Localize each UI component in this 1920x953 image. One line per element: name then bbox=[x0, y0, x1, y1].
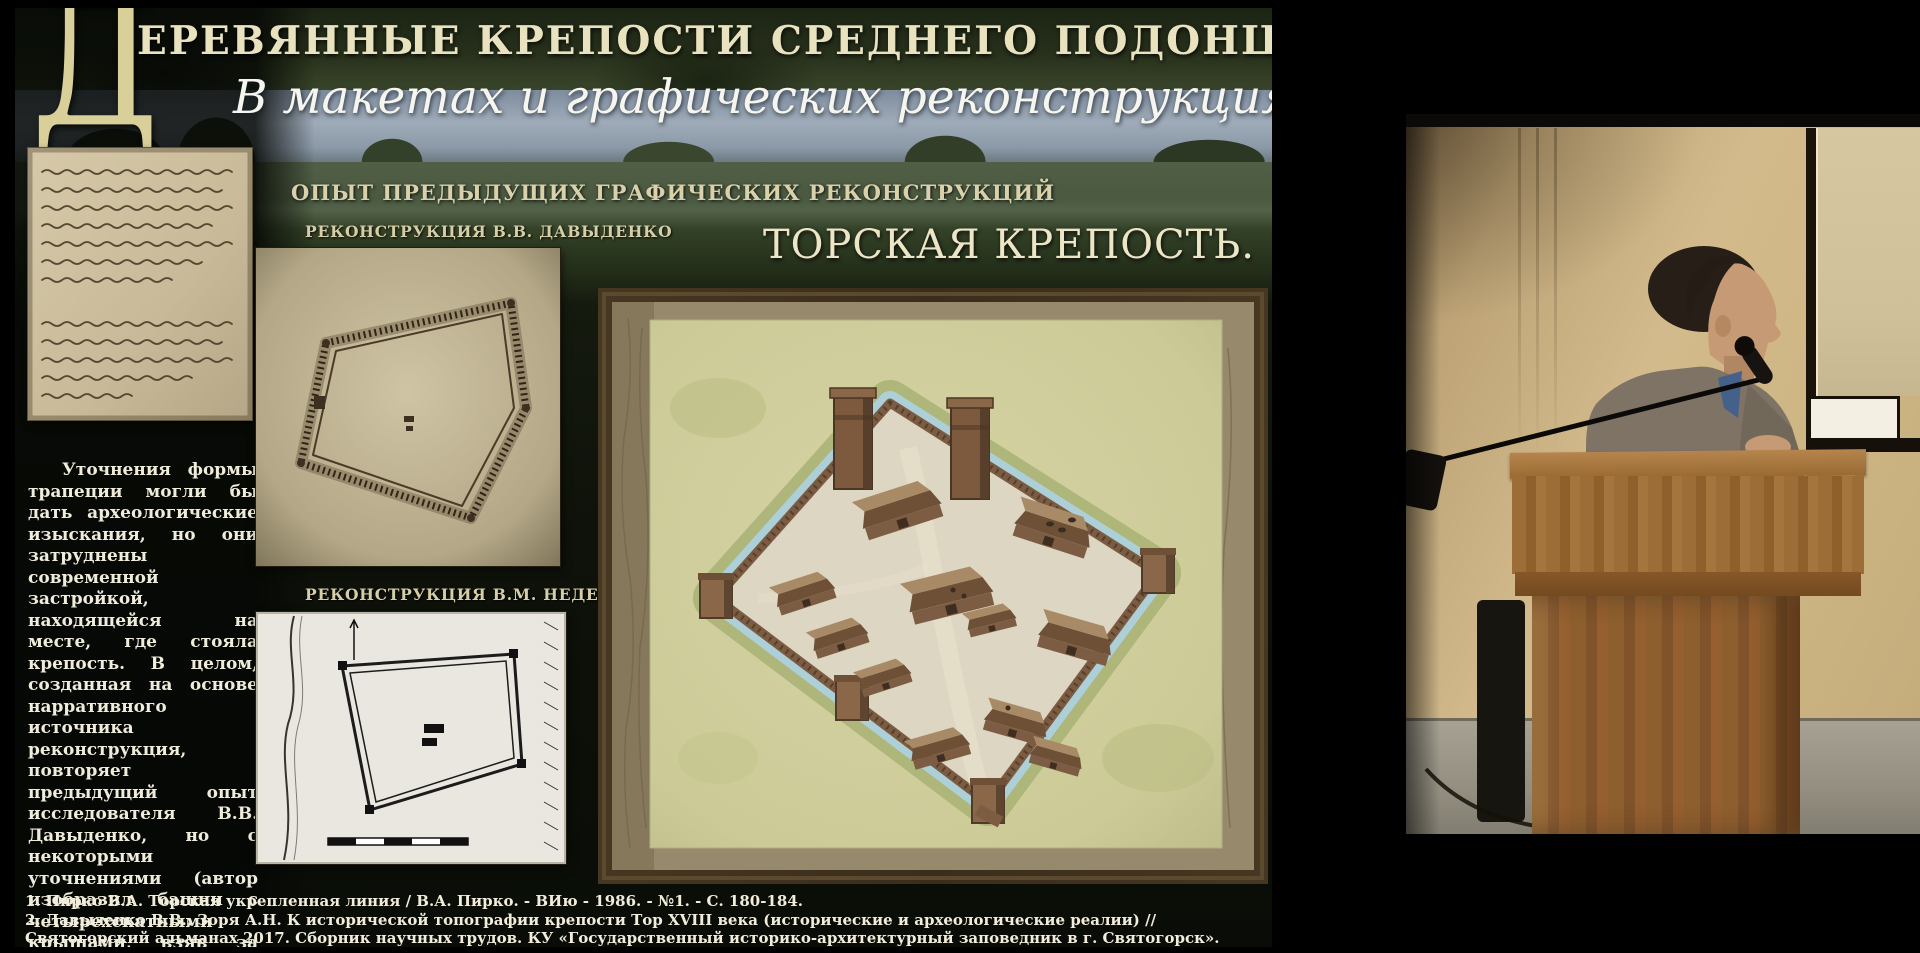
slide-title: ЕРЕВЯННЫЕ КРЕПОСТИ СРЕДНЕГО ПОДОНЦОВЬЯ bbox=[137, 18, 1272, 64]
ear bbox=[1715, 315, 1731, 337]
corner-tower-west bbox=[698, 573, 734, 618]
references-block: 1. Пирко В.А. Торская укрепленная линия … bbox=[25, 892, 1267, 947]
podium-pedestal bbox=[1532, 596, 1800, 834]
conference-video-frame: Д ЕРЕВЯННЫЕ КРЕПОСТИ СРЕДНЕГО ПОДОНЦОВЬЯ… bbox=[0, 0, 1920, 953]
gate-tower-right bbox=[947, 398, 993, 499]
fortress-reconstruction-image bbox=[598, 288, 1268, 884]
corner-tower-east bbox=[1140, 548, 1176, 593]
slide-subtitle-script: В макетах и графических реконструкциях bbox=[233, 70, 1153, 125]
reference-2: 2. Давыденко В.В., Зоря А.Н. К историчес… bbox=[25, 911, 1267, 948]
photo-left-shadow bbox=[1406, 114, 1440, 834]
label-reconstruction-davydenko: РЕКОНСТРУКЦИЯ В.В. ДАВЫДЕНКО bbox=[305, 222, 672, 241]
manuscript-image bbox=[28, 148, 252, 420]
podium-front-panel bbox=[1512, 476, 1864, 574]
scale-bar bbox=[328, 838, 468, 845]
speaker-video-panel bbox=[1406, 114, 1920, 834]
podium-top-edge bbox=[1510, 449, 1866, 479]
gate-tower-left bbox=[830, 388, 876, 489]
nedelin-plan-image bbox=[256, 612, 566, 864]
body-paragraph: Уточнения формы трапеции могли бы дать а… bbox=[28, 460, 258, 947]
davydenko-sketch-image bbox=[256, 248, 560, 566]
reference-1: 1. Пирко В.А. Торская укрепленная линия … bbox=[25, 892, 1267, 911]
photo-top-dark-strip bbox=[1406, 114, 1920, 127]
mic-cable bbox=[1426, 769, 1536, 826]
podium-lower-band bbox=[1515, 572, 1861, 596]
section-heading: ОПЫТ ПРЕДЫДУЩИХ ГРАФИЧЕСКИХ РЕКОНСТРУКЦИ… bbox=[291, 180, 1055, 205]
presentation-slide: Д ЕРЕВЯННЫЕ КРЕПОСТИ СРЕДНЕГО ПОДОНЦОВЬЯ… bbox=[15, 8, 1272, 947]
fortress-caption: ТОРСКАЯ КРЕПОСТЬ. 1697 г. bbox=[763, 222, 1272, 268]
